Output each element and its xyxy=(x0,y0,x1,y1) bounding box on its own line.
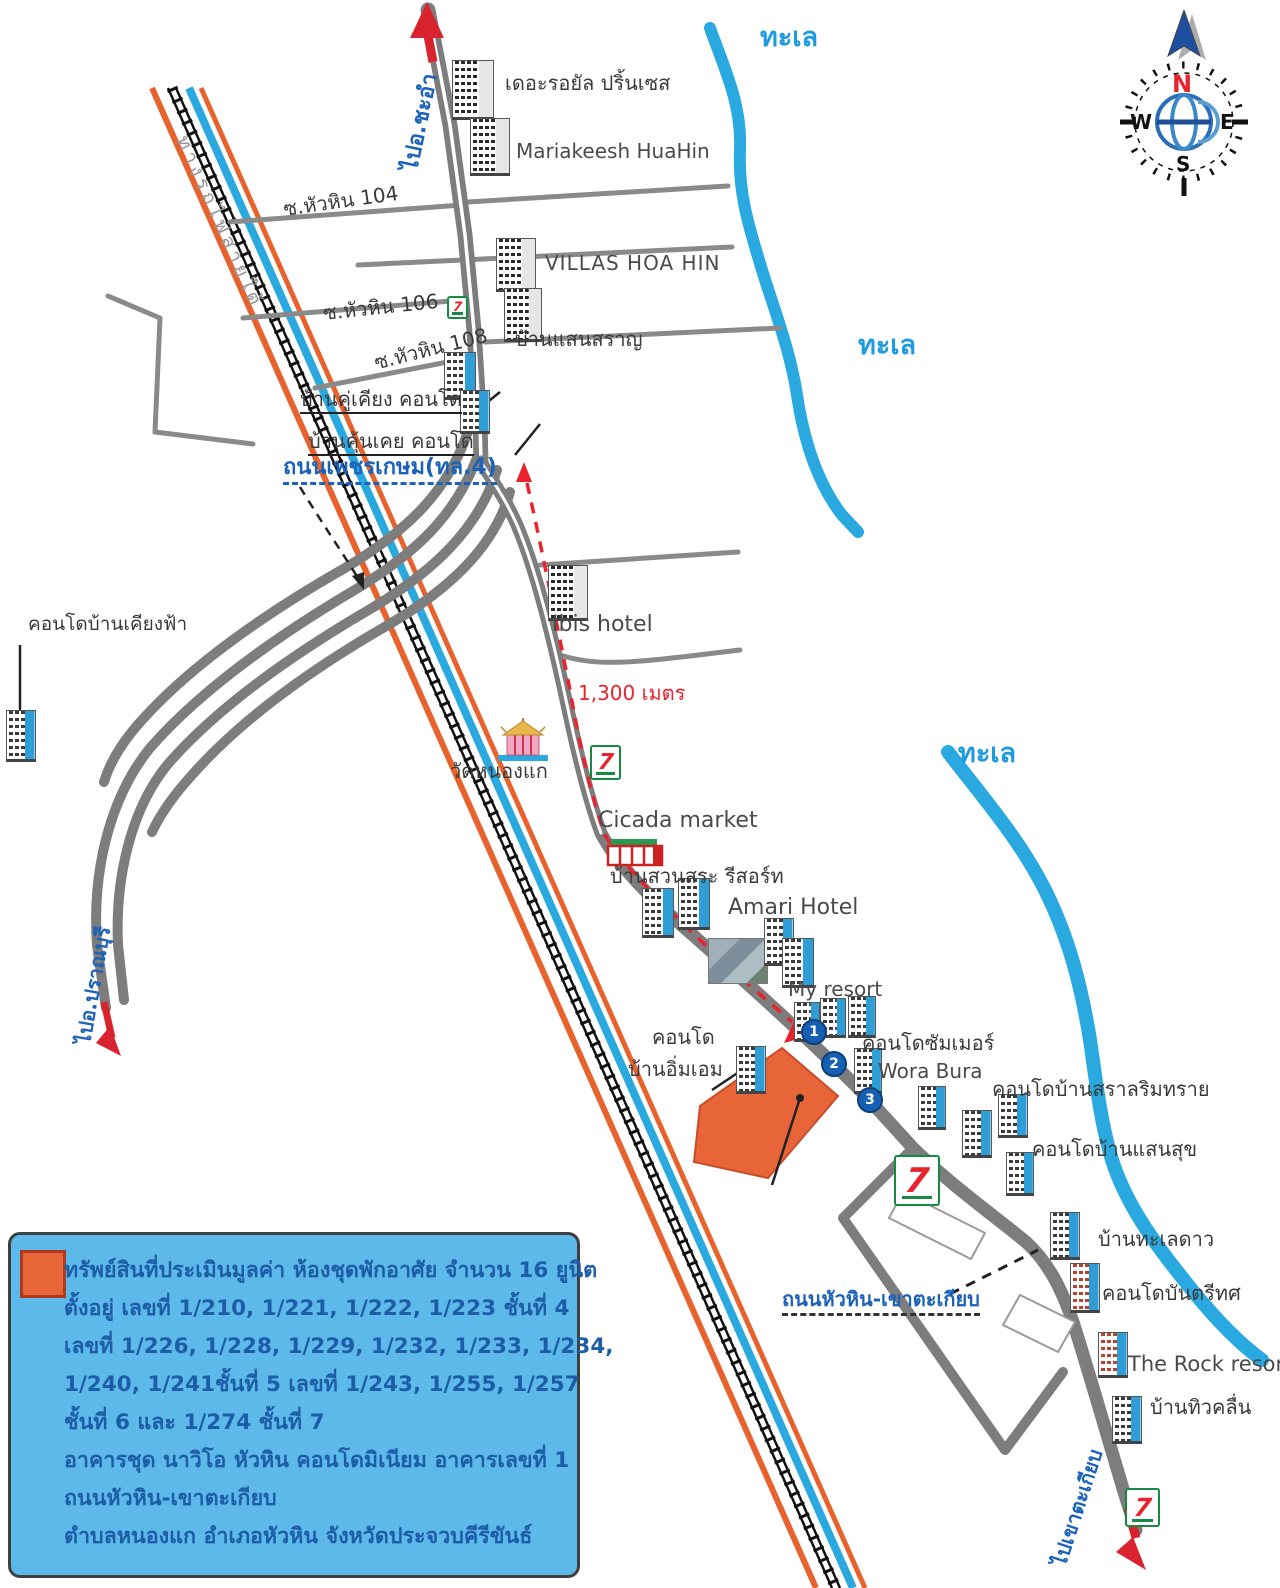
place-label-baan-suan-sa: บ้านสวนสระ รีสอร์ท xyxy=(610,865,784,888)
place-label-condo-baan-khiang-fa: คอนโดบ้านเคียงฟ้า xyxy=(28,614,187,636)
annotation-lines xyxy=(20,392,1038,1294)
place-label-condo-baan-im-aem: บ้านอิ่มเอม xyxy=(628,1058,723,1081)
seven-eleven-icon: 7 xyxy=(1125,1488,1160,1527)
building-icon xyxy=(1070,1263,1100,1313)
compass-north-label: N xyxy=(1172,70,1192,98)
place-label-condo-summer: คอนโดซัมเมอร์ xyxy=(862,1032,994,1055)
building-icon xyxy=(918,1086,946,1130)
map-canvas: N W E S xyxy=(0,0,1280,1588)
place-label-baan-khu-khiang: บ้านคู่เคียง คอนโด xyxy=(300,388,462,414)
legend-line: ตำบลหนองแก อำเภอหัวหิน จังหวัดประจวบคีรี… xyxy=(64,1518,564,1556)
place-label-amari: Amari Hotel xyxy=(728,895,858,920)
sea-label-top: ทะเล xyxy=(760,22,818,53)
building-icon xyxy=(6,710,36,762)
place-label-baan-talay-dao: บ้านทะเลดาว xyxy=(1098,1228,1214,1251)
building-icon xyxy=(642,888,674,938)
legend-line: ทรัพย์สินที่ประเมินมูลค่า ห้องชุดพักอาศั… xyxy=(64,1252,564,1290)
river-lower xyxy=(948,752,1262,1360)
building-icon xyxy=(962,1110,992,1158)
compass-east-label: E xyxy=(1220,110,1234,134)
route-marker-1: 1 xyxy=(801,1019,827,1045)
building-icon xyxy=(1050,1212,1080,1260)
distance-label: 1,300 เมตร xyxy=(578,682,685,705)
compass-south-label: S xyxy=(1176,152,1190,176)
building-icon xyxy=(1112,1396,1142,1444)
legend-line: อาคารชุด นาวิโอ หัวหิน คอนโดมิเนียม อาคา… xyxy=(64,1442,564,1480)
place-label-the-rock: The Rock resort xyxy=(1128,1352,1280,1376)
legend-line: ตั้งอยู่ เลขที่ 1/210, 1/221, 1/222, 1/2… xyxy=(64,1290,564,1328)
hotel-photo-icon xyxy=(708,938,768,984)
building-icon xyxy=(452,60,494,120)
seven-eleven-icon: 7 xyxy=(447,296,468,319)
place-label-wora-bura: Wora Bura xyxy=(878,1060,983,1083)
compass-west-label: W xyxy=(1130,110,1152,134)
road-label-hua-hin-khao-takiab: ถนนหัวหิน-เขาตะเกียบ xyxy=(782,1288,980,1316)
place-label-condo-baan-saen-suk: คอนโดบ้านแสนสุข xyxy=(1032,1138,1197,1161)
road-label-phetkasem: ถนนเพชรเกษม(ทล.4) xyxy=(283,455,497,485)
legend-line: เลขที่ 1/226, 1/228, 1/229, 1/232, 1/233… xyxy=(64,1328,564,1366)
place-label-mariakeesh: Mariakeesh HuaHin xyxy=(516,140,710,163)
place-label-villas-hoa-hin: VILLAS HOA HIN xyxy=(545,252,720,275)
building-icon xyxy=(1006,1152,1034,1196)
place-label-condo-line1: คอนโด xyxy=(652,1026,715,1049)
place-label-royal-princess: เดอะรอยัล ปริ้นเซส xyxy=(505,72,670,95)
route-marker-3: 3 xyxy=(857,1087,883,1113)
building-icon xyxy=(460,390,490,434)
route-marker-2: 2 xyxy=(821,1051,847,1077)
building-icon xyxy=(736,1046,766,1094)
building-icon xyxy=(1098,1332,1128,1378)
legend-line: ชั้นที่ 6 และ 1/274 ชั้นที่ 7 xyxy=(64,1404,564,1442)
legend-property-swatch xyxy=(20,1250,66,1298)
seven-eleven-icon: 7 xyxy=(590,745,621,780)
place-label-baan-saen-saran: บ้านแสนสราญ xyxy=(515,328,643,351)
place-label-condo-bantri-thot: คอนโดบันตรีทศ xyxy=(1102,1282,1241,1305)
place-label-my-resort: My resort xyxy=(788,978,882,1001)
sea-label-lower: ทะเล xyxy=(958,738,1016,769)
sea-label-middle: ทะเล xyxy=(858,330,916,361)
building-icon xyxy=(470,118,510,176)
river-top xyxy=(710,28,858,532)
place-label-condo-sara-rim-sai: คอนโดบ้านสราลริมทราย xyxy=(992,1078,1210,1101)
legend-text: ทรัพย์สินที่ประเมินมูลค่า ห้องชุดพักอาศั… xyxy=(64,1252,564,1556)
place-label-cicada: Cicada market xyxy=(598,808,758,833)
place-label-baan-thiu-khluen: บ้านทิวคลื่น xyxy=(1150,1396,1251,1419)
compass-rose: N W E S xyxy=(1118,10,1250,202)
place-label-baan-khun-khoei: บ้านคุ้นเคย คอนโด xyxy=(308,430,474,456)
seven-eleven-icon: 7 xyxy=(894,1155,940,1206)
place-label-ibis: Ibis hotel xyxy=(552,612,653,637)
legend-line: 1/240, 1/241ชั้นที่ 5 เลขที่ 1/243, 1/25… xyxy=(64,1366,564,1404)
building-icon xyxy=(496,238,536,292)
place-label-wat-nong-kae: วัดหนองแก xyxy=(450,760,548,783)
legend-line: ถนนหัวหิน-เขาตะเกียบ xyxy=(64,1480,564,1518)
